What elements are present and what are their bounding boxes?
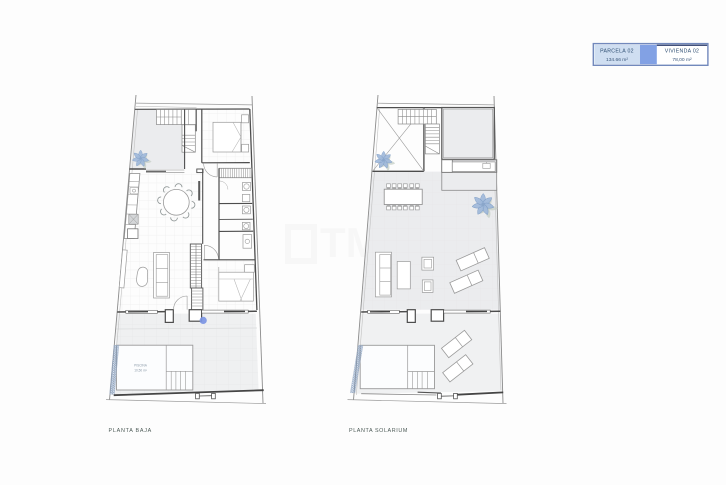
svg-text:PISCINA: PISCINA (134, 364, 148, 368)
svg-text:PLANTA BAJA: PLANTA BAJA (109, 428, 153, 434)
svg-text:PARCELA 02: PARCELA 02 (600, 48, 634, 54)
svg-text:PLANTA SOLARIUM: PLANTA SOLARIUM (349, 428, 408, 434)
svg-text:78,00 m²: 78,00 m² (672, 57, 692, 63)
svg-text:10,50 m²: 10,50 m² (134, 369, 147, 373)
svg-text:134.66 m²: 134.66 m² (606, 57, 628, 63)
svg-text:VIVIENDA 02: VIVIENDA 02 (665, 48, 699, 54)
